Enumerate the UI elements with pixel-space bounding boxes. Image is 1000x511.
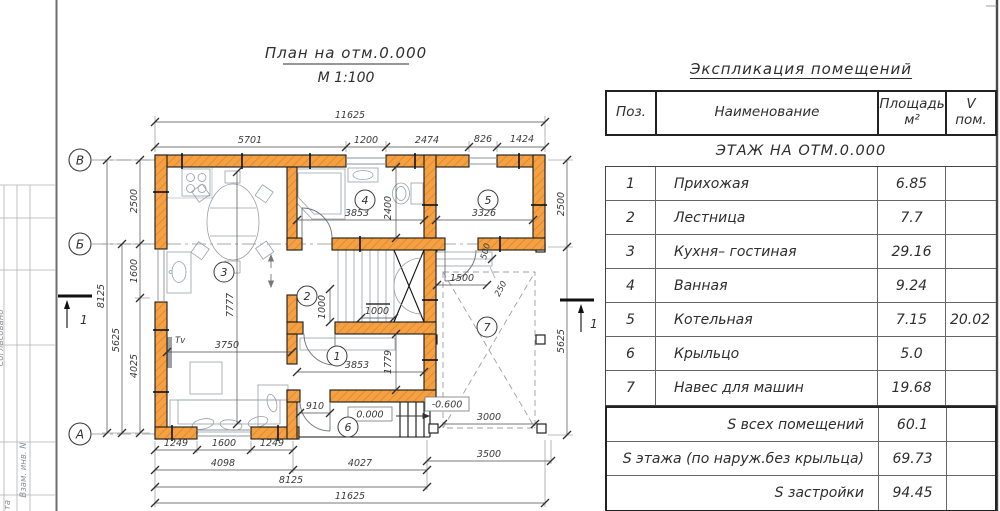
level-minus: -0.600 (432, 400, 463, 411)
dim-3000: 3000 (477, 412, 501, 423)
row-v (946, 201, 994, 234)
col-header-v-unit: пом. (955, 112, 987, 128)
dim-4098: 4098 (211, 458, 235, 469)
level-zero: 0.000 (356, 410, 383, 421)
row-area: 6.85 (878, 167, 946, 200)
section-label-right: 1 (590, 317, 598, 331)
row-area: 19.68 (878, 371, 946, 405)
total-v (947, 408, 995, 441)
row-name: Котельная (656, 303, 878, 336)
explication-header: Поз. Наименование Площадь м² V пом. (605, 90, 997, 136)
dim-1249b: 1249 (260, 438, 284, 449)
explication-title: Экспликация помещений (605, 60, 997, 78)
row-area: 7.15 (878, 303, 946, 336)
dim-2400: 2400 (383, 196, 394, 220)
row-v (946, 371, 994, 405)
table-row: 5 Котельная 7.15 20.02 (606, 303, 996, 337)
dim-826: 826 (474, 134, 492, 145)
row-pos: 2 (606, 201, 656, 234)
col-header-area: Площадь м² (879, 92, 947, 134)
row-name: Крыльцо (656, 337, 878, 370)
row-v (946, 337, 994, 370)
dim-left-2500: 2500 (129, 189, 140, 213)
room-1: 1 (334, 350, 341, 363)
tv-unit (167, 337, 172, 368)
row-area: 29.16 (878, 235, 946, 268)
row-pos: 6 (606, 337, 656, 370)
room-5: 5 (485, 194, 492, 207)
room-3: 3 (221, 266, 228, 279)
row-area: 9.24 (878, 269, 946, 302)
room-6: 6 (345, 421, 352, 434)
table-row: 1 Прихожая 6.85 (606, 167, 996, 201)
total-value: 94.45 (879, 476, 947, 510)
table-row: 7 Навес для машин 19.68 (606, 371, 996, 405)
dim-1000a: 1000 (317, 295, 328, 319)
col-header-name: Наименование (657, 92, 879, 134)
dim-left-5625: 5625 (111, 328, 122, 352)
col-header-v-word: V (966, 96, 975, 112)
row-name: Лестница (656, 201, 878, 234)
row-pos: 7 (606, 371, 656, 405)
total-v (947, 442, 995, 475)
total-row: S этажа (по наруж.без крыльца) 69.73 (607, 442, 995, 476)
table-row: 6 Крыльцо 5.0 (606, 337, 996, 371)
total-row: S всех помещений 60.1 (607, 408, 995, 442)
dim-hall-3853: 3853 (345, 360, 369, 371)
col-header-area-word: Площадь (879, 96, 944, 112)
row-pos: 4 (606, 269, 656, 302)
dim-left-4025: 4025 (129, 354, 140, 378)
row-name: Ванная (656, 269, 878, 302)
room-7: 7 (484, 321, 491, 334)
total-value: 60.1 (879, 408, 947, 441)
dim-right-5625: 5625 (556, 329, 567, 353)
tv-label: Tv (175, 336, 186, 346)
stamp-side-text-bottom: та (3, 500, 13, 510)
section-label-left: 1 (80, 313, 88, 327)
dim-7777: 7777 (225, 293, 236, 317)
row-v (946, 269, 994, 302)
floor-section-header: ЭТАЖ НА ОТМ.0.000 (605, 136, 997, 166)
col-header-pos: Поз. (607, 92, 657, 134)
row-v (946, 167, 994, 200)
dim-250: 250 (493, 280, 509, 299)
dim-1000b: 1000 (365, 306, 389, 317)
dim-left-8125: 8125 (96, 284, 107, 308)
col-header-area-unit: м² (904, 112, 920, 128)
dim-910: 910 (306, 401, 324, 412)
row-name: Прихожая (656, 167, 878, 200)
total-label: S этажа (по наруж.без крыльца) (607, 442, 879, 475)
col-header-v: V пом. (947, 92, 995, 134)
row-area: 5.0 (878, 337, 946, 370)
dim-2474: 2474 (415, 135, 439, 146)
dim-5701: 5701 (238, 135, 262, 146)
dim-3750: 3750 (215, 340, 239, 351)
dim-1200: 1200 (354, 135, 378, 146)
explication-rows: 1 Прихожая 6.85 2 Лестница 7.7 3 Кухня– … (605, 166, 997, 406)
dim-3500: 3500 (477, 449, 501, 460)
row-v (946, 235, 994, 268)
total-label: S всех помещений (607, 408, 879, 441)
stamp-side-text-mid: Взам. инв. N (19, 442, 29, 498)
row-pos: 3 (606, 235, 656, 268)
axis-a: А (75, 428, 84, 442)
table-row: 3 Кухня– гостиная 29.16 (606, 235, 996, 269)
axis-v: В (76, 154, 84, 168)
plan-title: План на отм.0.000 (265, 44, 427, 62)
dim-11625b: 11625 (335, 491, 365, 502)
table-row: 4 Ванная 9.24 (606, 269, 996, 303)
dim-1779: 1779 (383, 350, 394, 374)
totals-block: S всех помещений 60.1 S этажа (по наруж.… (605, 406, 997, 511)
dim-1424: 1424 (510, 134, 534, 145)
dim-right-2500: 2500 (556, 192, 567, 216)
room-4: 4 (362, 194, 369, 207)
axis-b: Б (76, 238, 84, 252)
dim-top-total: 11625 (335, 110, 365, 121)
row-pos: 1 (606, 167, 656, 200)
dim-8125b: 8125 (279, 475, 303, 486)
row-name: Кухня– гостиная (656, 235, 878, 268)
total-label: S застройки (607, 476, 879, 510)
table-row: 2 Лестница 7.7 (606, 201, 996, 235)
dim-left-1600: 1600 (129, 259, 140, 283)
stamp-side-text-top: Согласовано (0, 309, 6, 366)
dim-4027: 4027 (348, 458, 372, 469)
total-value: 69.73 (879, 442, 947, 475)
plan-scale: М 1:100 (318, 70, 375, 86)
explication-panel: Экспликация помещений Поз. Наименование … (605, 60, 997, 511)
total-row: S застройки 94.45 (607, 476, 995, 510)
drawing-sheet: Согласовано Взам. инв. N та План на отм.… (0, 0, 1000, 511)
dim-1600b: 1600 (212, 438, 236, 449)
row-area: 7.7 (878, 201, 946, 234)
row-pos: 5 (606, 303, 656, 336)
total-v (947, 476, 995, 510)
room-2: 2 (304, 290, 311, 303)
row-name: Навес для машин (656, 371, 878, 405)
dim-1500: 1500 (450, 273, 474, 284)
row-v: 20.02 (946, 303, 994, 336)
dim-1249a: 1249 (164, 438, 188, 449)
